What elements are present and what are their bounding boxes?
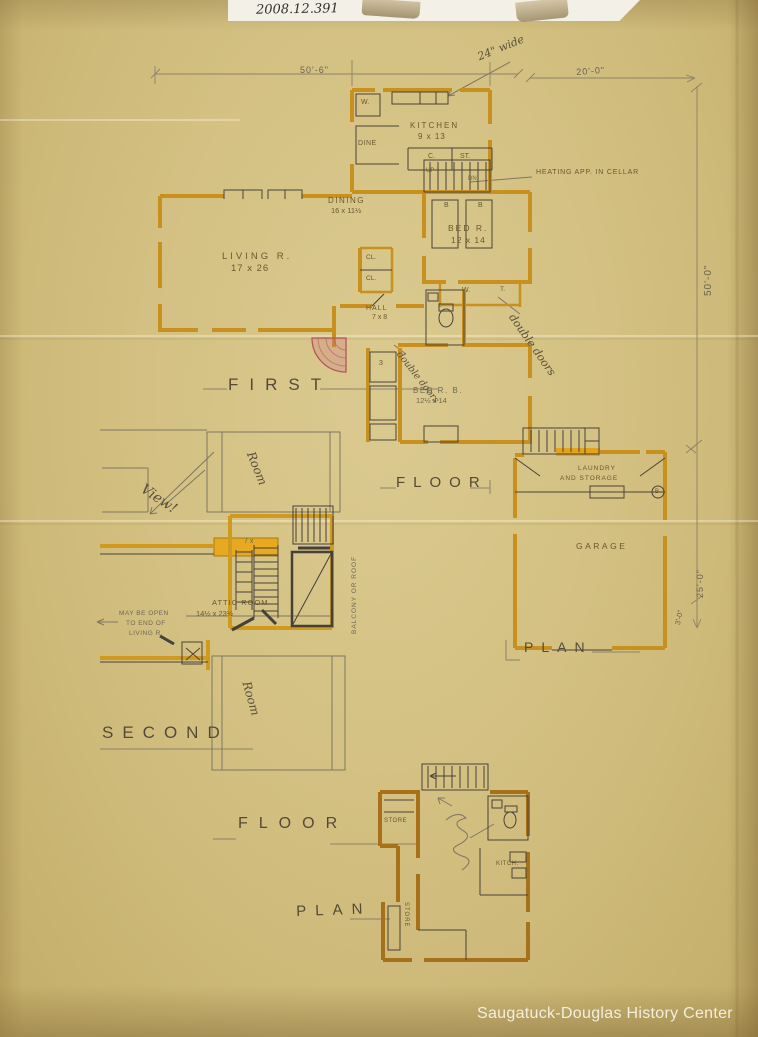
label-bedroom1-size: 12 x 14	[451, 236, 486, 245]
title-first: FIRST	[228, 376, 332, 393]
title-first-floor: FLOOR	[396, 475, 488, 490]
label-laundry: LAUNDRY	[578, 466, 616, 473]
label-kitchen-size: 9 x 13	[418, 133, 446, 141]
watermark: Saugatuck-Douglas History Center	[477, 1005, 733, 1023]
label-closet-1: CL.	[366, 255, 376, 262]
dim-right-upper: 50'-0"	[704, 265, 714, 296]
label-attic-size: 14½ x 23½	[196, 610, 233, 618]
catalog-number: 2008.12.391	[256, 1, 339, 17]
label-hall-size: 7 x 8	[372, 314, 387, 321]
highlight-fills	[214, 448, 600, 556]
second-floor-stairs	[160, 506, 333, 644]
note-open-3: LIVING R.	[129, 631, 163, 638]
floorplan-drawing	[0, 0, 758, 1037]
label-garage: GARAGE	[576, 542, 627, 551]
first-floor-stair-hatch	[430, 162, 486, 190]
dim-right-lower: 25'-0"	[696, 569, 705, 598]
label-stairs-down: DN	[468, 176, 477, 182]
label-closet-st: ST.	[460, 153, 470, 160]
label-stairs-up: UP	[426, 168, 434, 174]
note-open-1: MAY BE OPEN	[119, 611, 169, 618]
entry-door-arc	[312, 338, 346, 372]
label-dining: DINING	[328, 197, 365, 205]
label-store-bottom: STORE	[403, 902, 409, 928]
label-laundry-storage: AND STORAGE	[560, 476, 618, 483]
label-dine: DINE	[358, 140, 377, 147]
label-store-left: STORE	[384, 818, 407, 824]
label-bedroom2: BED R. B.	[413, 387, 463, 395]
label-stair-size: 7 x	[244, 538, 253, 545]
label-living-room: LIVING R.	[222, 252, 292, 262]
title-second-floor: FLOOR	[238, 816, 348, 832]
label-closet-2: CL.	[366, 276, 376, 283]
label-wardrobe: W.	[462, 287, 470, 294]
label-living-size: 17 x 26	[231, 264, 269, 274]
label-w-closet: W.	[361, 99, 369, 106]
label-bed-b1: B	[444, 202, 449, 209]
note-heating: HEATING APP. IN CELLAR	[536, 169, 639, 176]
label-kitchen: KITCHEN	[410, 122, 459, 130]
note-open-2: TO END OF	[126, 621, 166, 628]
label-garage-b: B	[655, 489, 659, 495]
garage-details	[515, 428, 665, 650]
blueprint-sheet: 2008.12.391 50'-6" 20'-0" 50'-0" 25'-0" …	[0, 0, 758, 1037]
label-bedroom1: BED R.	[448, 224, 488, 233]
label-attic-room: ATTIC ROOM	[212, 599, 269, 607]
label-bedroom2-size: 12½ x 14	[416, 397, 447, 405]
label-steps-count: 3	[379, 360, 383, 367]
first-floor-thin-walls	[360, 248, 520, 307]
title-first-plan: PLAN	[524, 640, 593, 654]
paper-creases	[0, 0, 758, 1037]
label-closet-c: C.	[428, 153, 435, 160]
label-cellar-kitch: KITCH.	[496, 861, 519, 867]
title-second-plan: PLAN	[296, 901, 372, 919]
label-dining-size: 16 x 11½	[331, 207, 361, 215]
note-balcony-roof: BALCONY OR ROOF	[352, 556, 359, 634]
label-t-closet: T.	[500, 287, 505, 294]
label-hall: HALL	[366, 305, 388, 312]
backing-strip: 2008.12.391	[228, 0, 640, 21]
first-floor-walls	[160, 90, 532, 444]
title-second: SECOND	[102, 724, 229, 741]
dim-top-left: 50'-6"	[300, 66, 329, 75]
label-bed-b2: B	[478, 202, 483, 209]
